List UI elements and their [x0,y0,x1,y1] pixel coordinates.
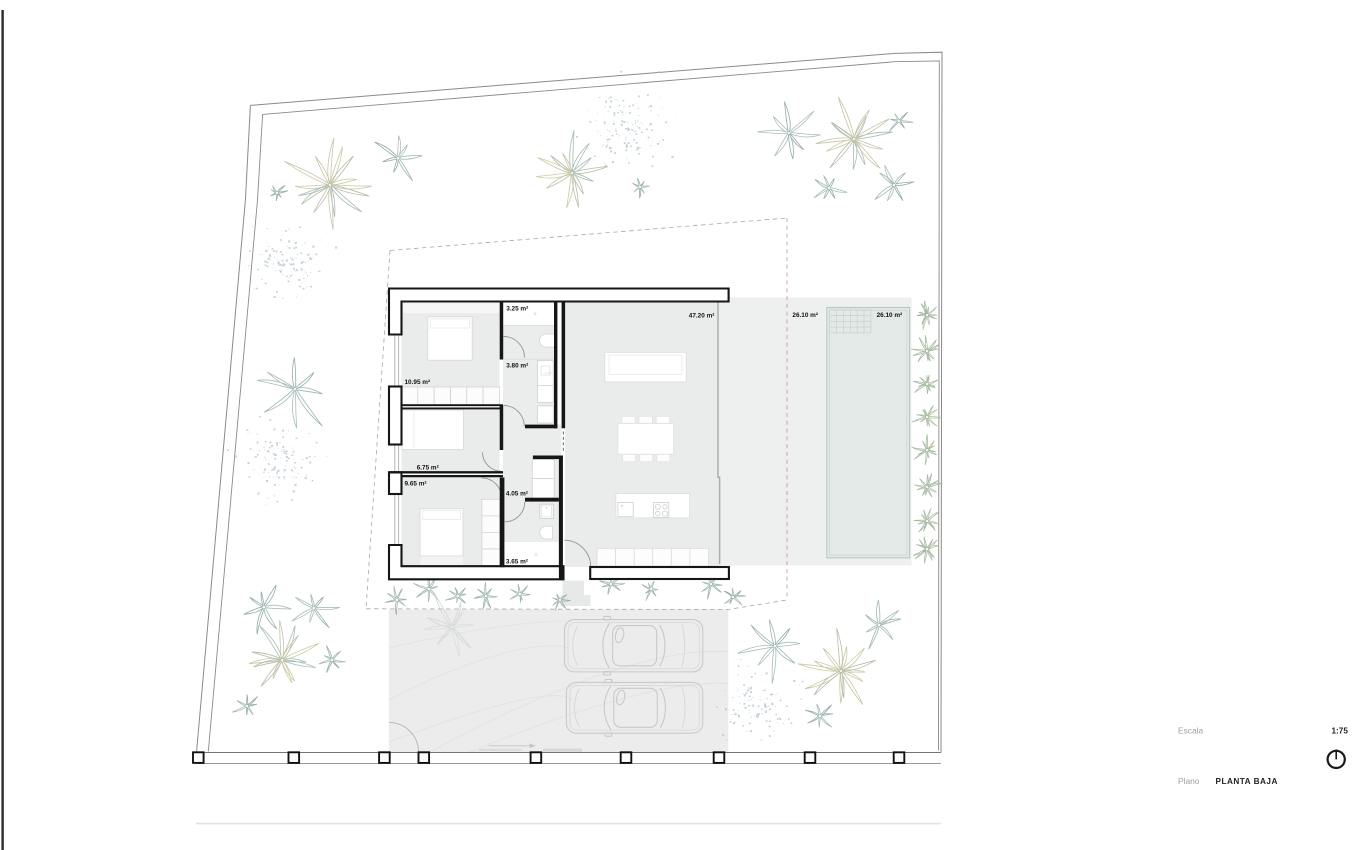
svg-text:9.65 m²: 9.65 m² [405,481,427,488]
svg-text:4.05 m²: 4.05 m² [506,491,528,498]
svg-text:26.10 m²: 26.10 m² [792,312,818,319]
svg-text:Escala: Escala [1178,726,1203,736]
svg-text:3.80 m²: 3.80 m² [506,363,528,370]
svg-text:26.10 m²: 26.10 m² [877,312,903,319]
svg-text:47.20 m²: 47.20 m² [689,313,715,320]
svg-text:1:75: 1:75 [1332,727,1349,736]
svg-text:Plano: Plano [1178,776,1200,786]
svg-text:6.75 m²: 6.75 m² [417,465,439,472]
svg-text:3.65 m²: 3.65 m² [506,559,528,566]
svg-text:PLANTA BAJA: PLANTA BAJA [1216,777,1278,786]
svg-text:3.25 m²: 3.25 m² [506,305,528,312]
svg-text:10.95 m²: 10.95 m² [405,379,431,386]
